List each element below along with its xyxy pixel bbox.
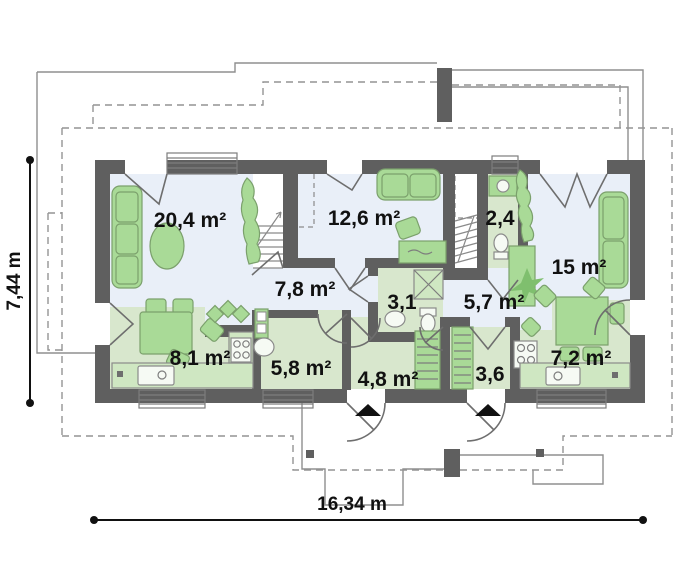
room-label-hall-2: 5,7 m²	[464, 291, 525, 314]
bedroom-sofa	[377, 169, 440, 200]
room-label-utility: 5,8 m²	[271, 357, 332, 380]
floor-plan-image: 7,44 m 16,34 m 20,4 m² 12,6 m² 2,4 15 m²…	[0, 0, 700, 576]
wardrobe-entry-hall-2	[452, 327, 473, 389]
room-label-dining: 8,1 m²	[170, 347, 231, 370]
room-label-bathroom: 3,1	[387, 291, 417, 314]
wardrobe-entry-hall	[415, 331, 440, 389]
room-label-entry-2: 3,6	[475, 363, 504, 386]
room-label-hall: 7,8 m²	[275, 278, 336, 301]
living-sofa	[112, 186, 142, 288]
room-label-entry: 4,8 m²	[358, 368, 419, 391]
room-label-living: 20,4 m²	[154, 209, 226, 232]
height-dimension-label: 7,44 m	[4, 251, 25, 310]
width-dimension-label: 16,34 m	[317, 494, 387, 515]
stairwell-2	[455, 174, 477, 268]
room-label-sitting: 15 m²	[552, 256, 607, 279]
terrace-pillar	[437, 68, 452, 122]
room-label-bedroom: 12,6 m²	[328, 207, 400, 230]
room-label-kitchen: 7,2 m²	[551, 347, 612, 370]
porch-pillar	[444, 449, 460, 477]
room-label-wc: 2,4	[485, 207, 515, 230]
floor-plan-svg: 7,44 m 16,34 m 20,4 m² 12,6 m² 2,4 15 m²…	[0, 0, 700, 576]
